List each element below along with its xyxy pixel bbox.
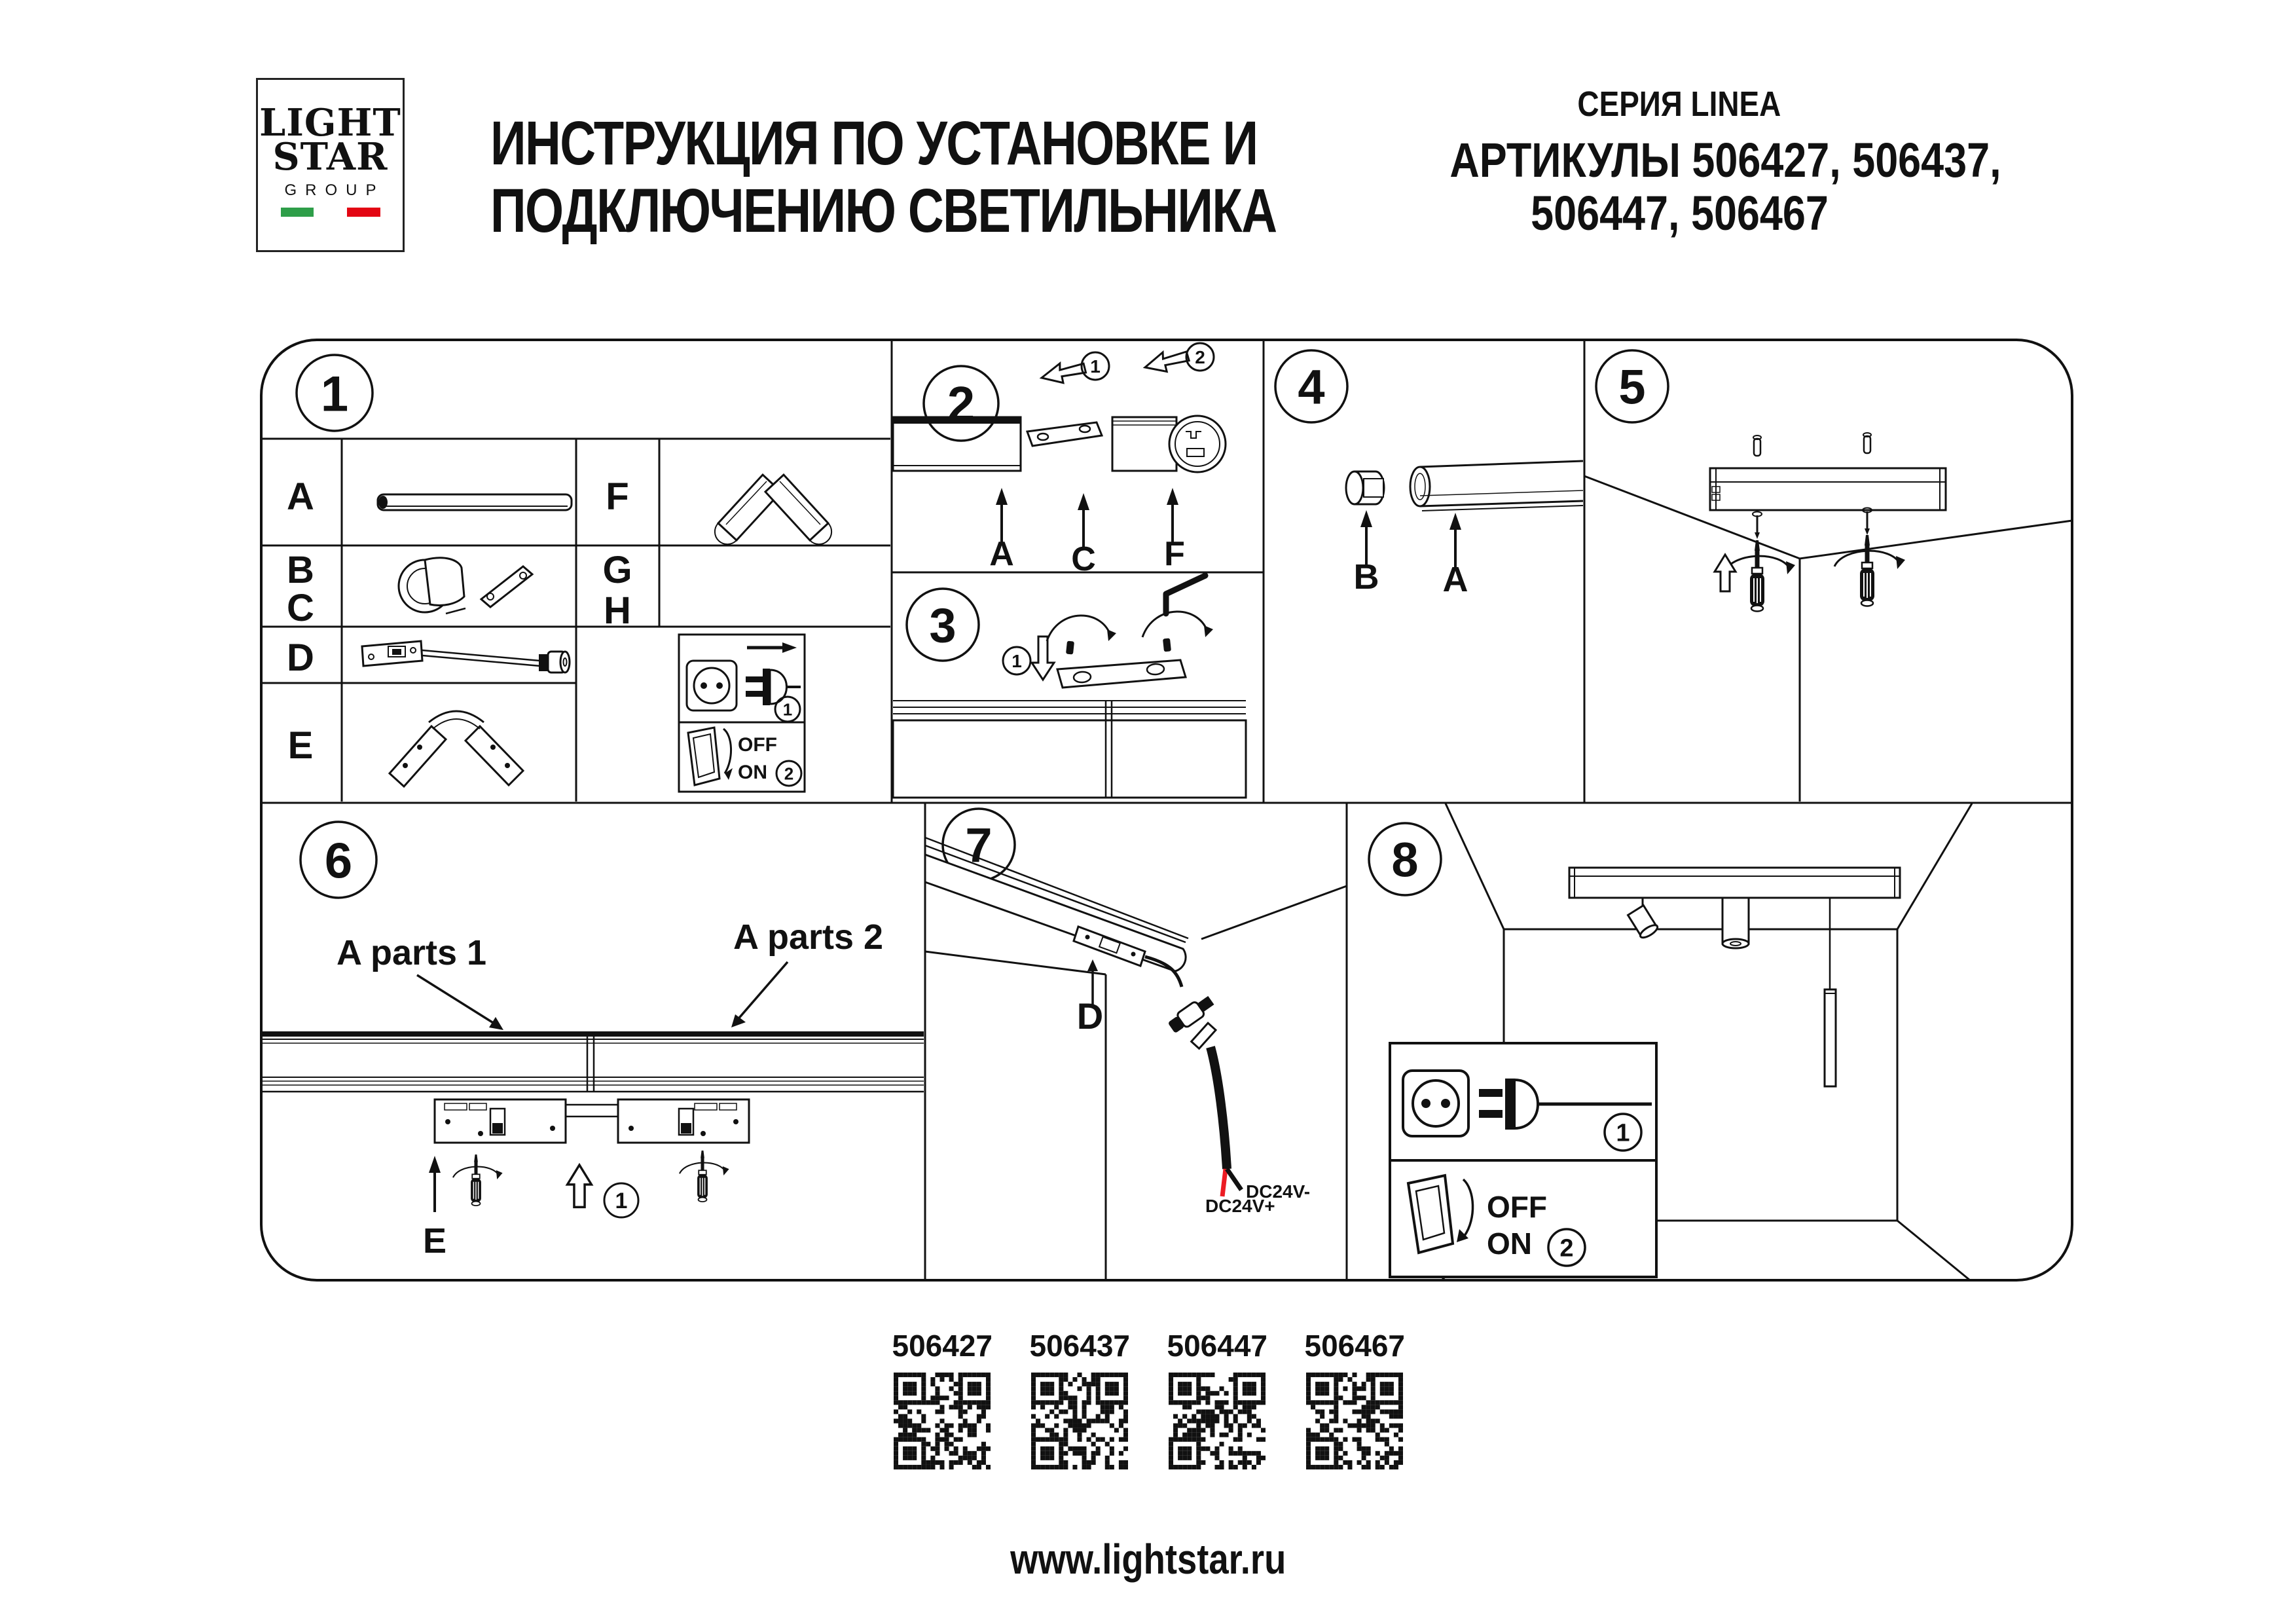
part-label-c: C — [287, 587, 314, 629]
site-url: www.lightstar.ru — [0, 1535, 2296, 1583]
title-line-1: ИНСТРУКЦИЯ ПО УСТАНОВКЕ И — [490, 110, 1258, 177]
up-arrow-icon — [1715, 555, 1736, 591]
part-label-d: D — [287, 637, 314, 679]
insert-arrow-1-icon — [1040, 361, 1087, 385]
part-c-plate-drawing — [481, 566, 532, 607]
arrow-e — [429, 1156, 441, 1212]
screwdriver-icon — [1860, 535, 1874, 606]
ceiling-corner-lines — [1584, 476, 2072, 559]
track-a-drawing — [1410, 461, 1583, 511]
panel-3-joined-tracks-drawing — [893, 701, 1246, 798]
svg-text:1: 1 — [1090, 356, 1101, 377]
screwdriver-icon — [471, 1154, 481, 1206]
page: LIGHT STAR GROUP ИНСТРУКЦИЯ ПО УСТАНОВКЕ… — [0, 0, 2296, 1624]
title-line-2: ПОДКЛЮЧЕНИЮ СВЕТИЛЬНИКА — [490, 177, 1277, 245]
qr-code — [894, 1373, 991, 1469]
wire-negative-black — [1227, 1169, 1241, 1190]
qr-code-row: 506427 506437 506447 506467 — [0, 1328, 2296, 1469]
logo-word-star: STAR — [258, 140, 403, 174]
label-a-parts-2: A parts 2 — [733, 917, 883, 957]
qr-item-506447: 506447 — [1167, 1328, 1267, 1469]
panel-3-plate-drawing — [1057, 660, 1186, 688]
panel-8-connection-icons: 1 OFF ON 2 — [1390, 1043, 1656, 1277]
spot-lamp-drawing — [1628, 898, 1660, 940]
screw-left — [1066, 641, 1074, 655]
cylinder-lamp-drawing — [1722, 898, 1749, 948]
part-d-feed-drawing — [362, 641, 570, 673]
panel-7-track-drawing — [925, 855, 1186, 971]
part-e-corner-connector-drawing — [390, 711, 523, 786]
panel-5-number: 5 — [1618, 360, 1645, 415]
panel-5-ceiling-mount: 5 — [1584, 350, 2072, 802]
room-track-drawing — [1569, 868, 1900, 898]
articles-line-2: 506447, 506467 — [1531, 187, 1829, 240]
instruction-diagram: 1 A B C D E F G H — [260, 339, 2073, 1282]
switch-icon — [688, 728, 733, 785]
italian-flag-icon — [281, 208, 380, 217]
articles-line-1: АРТИКУЛЫ 506427, 506437, — [1449, 134, 2001, 187]
article-code: 506427 — [892, 1328, 992, 1363]
series-articles: СЕРИЯ LINEA АРТИКУЛЫ 506427, 506437, 506… — [1401, 84, 1958, 240]
step-badge-2-number: 2 — [784, 764, 793, 783]
panel-4-number: 4 — [1298, 360, 1324, 415]
qr-code — [1169, 1373, 1266, 1469]
brand-logo: LIGHT STAR GROUP — [256, 78, 405, 252]
article-code: 506467 — [1305, 1328, 1404, 1363]
svg-text:2: 2 — [1195, 347, 1205, 367]
socket-icon — [687, 661, 737, 710]
up-arrow-icon — [568, 1165, 592, 1207]
svg-text:1: 1 — [1616, 1120, 1630, 1147]
leader-1 — [417, 975, 494, 1024]
panel-2-label-a: A — [989, 535, 1014, 573]
part-label-a: A — [287, 475, 314, 518]
rotate-arrow-right — [1142, 612, 1208, 637]
screwdriver-icon — [1750, 540, 1764, 612]
svg-text:2: 2 — [1559, 1235, 1573, 1263]
panel-2-number: 2 — [947, 377, 975, 432]
series-title: СЕРИЯ LINEA — [1578, 84, 1781, 124]
switch-on-label: ON — [1487, 1227, 1532, 1261]
dowel-left — [1753, 435, 1761, 456]
logo-word-group: GROUP — [258, 181, 403, 200]
linear-connector-drawing — [435, 1099, 749, 1143]
panel-6-linear-connection: 6 A parts 1 A parts 2 — [261, 822, 924, 1261]
step-badge-1-number: 1 — [783, 699, 792, 719]
part-f-corner-track-drawing — [715, 475, 831, 544]
qr-item-506427: 506427 — [892, 1328, 992, 1469]
panel-3-fix-plate: 3 1 — [893, 576, 1246, 798]
article-code: 506437 — [1030, 1328, 1129, 1363]
panel-2-label-f: F — [1164, 535, 1185, 573]
wire-pos-label: DC24V+ — [1205, 1196, 1275, 1216]
panel-4-label-a: A — [1443, 560, 1468, 599]
panel-2-join-tracks: 2 1 2 — [893, 343, 1226, 578]
screw-right — [1163, 638, 1171, 652]
svg-text:1: 1 — [1011, 651, 1022, 671]
panel-7-label-d: D — [1077, 995, 1103, 1037]
part-b-endcap-drawing — [399, 558, 465, 614]
feed-cable-drawing — [1145, 957, 1241, 1196]
label-a-parts-1: A parts 1 — [337, 933, 486, 972]
panel-8-room-view: 8 — [1369, 803, 1972, 1280]
panel-2-track-f-drawing — [1112, 416, 1226, 472]
panel-6-label-e: E — [423, 1221, 446, 1261]
part-label-b: B — [287, 549, 314, 591]
mount-screw-left — [1753, 512, 1762, 540]
rotate-arrow-left — [1047, 616, 1111, 641]
insert-arrow-2-icon — [1143, 349, 1190, 375]
switch-off-label: OFF — [1487, 1190, 1547, 1224]
screwdriver-icon — [697, 1151, 708, 1202]
part-a-track-drawing — [378, 494, 572, 510]
qr-item-506467: 506467 — [1305, 1328, 1404, 1469]
qr-item-506437: 506437 — [1030, 1328, 1129, 1469]
panel-4-label-b: B — [1354, 557, 1379, 597]
dowel-right — [1863, 433, 1871, 453]
panel-2-label-c: C — [1071, 540, 1096, 578]
part-label-h: H — [604, 589, 631, 632]
panel-2-plate-c-drawing — [1027, 422, 1102, 446]
panel-1-parts-table: 1 A B C D E F G H — [261, 355, 890, 802]
switch-on-label: ON — [738, 762, 767, 783]
mount-screw-right — [1863, 508, 1872, 536]
cap-b-drawing — [1346, 471, 1384, 504]
panel-5-track-drawing — [1710, 468, 1946, 510]
panel-6-number: 6 — [325, 833, 352, 889]
page-title: ИНСТРУКЦИЯ ПО УСТАНОВКЕ И ПОДКЛЮЧЕНИЮ СВ… — [490, 110, 1473, 244]
part-label-g: G — [602, 549, 632, 591]
panel-7-power-feed: 7 D — [925, 809, 1347, 1280]
panel-1-connection-icons: 1 OFF ON 2 — [679, 635, 805, 792]
leader-2 — [737, 962, 788, 1021]
qr-code — [1031, 1373, 1128, 1469]
part-label-f: F — [606, 475, 629, 518]
svg-text:1: 1 — [615, 1189, 628, 1213]
hex-key-icon — [1166, 576, 1205, 614]
wire-positive-red — [1222, 1169, 1226, 1196]
plug-icon — [746, 642, 801, 705]
panel-4-end-cap: 4 B A — [1275, 350, 1583, 599]
pendant-lamp-drawing — [1825, 898, 1836, 1086]
down-arrow-icon — [1032, 637, 1054, 680]
panel-1-number: 1 — [321, 366, 348, 422]
panel-3-number: 3 — [929, 599, 956, 653]
panel-8-number: 8 — [1391, 833, 1418, 887]
article-code: 506447 — [1167, 1328, 1267, 1363]
switch-off-label: OFF — [738, 734, 777, 756]
panel-6-track-drawing — [261, 1031, 924, 1092]
part-label-e: E — [288, 724, 314, 767]
qr-code — [1306, 1373, 1403, 1469]
